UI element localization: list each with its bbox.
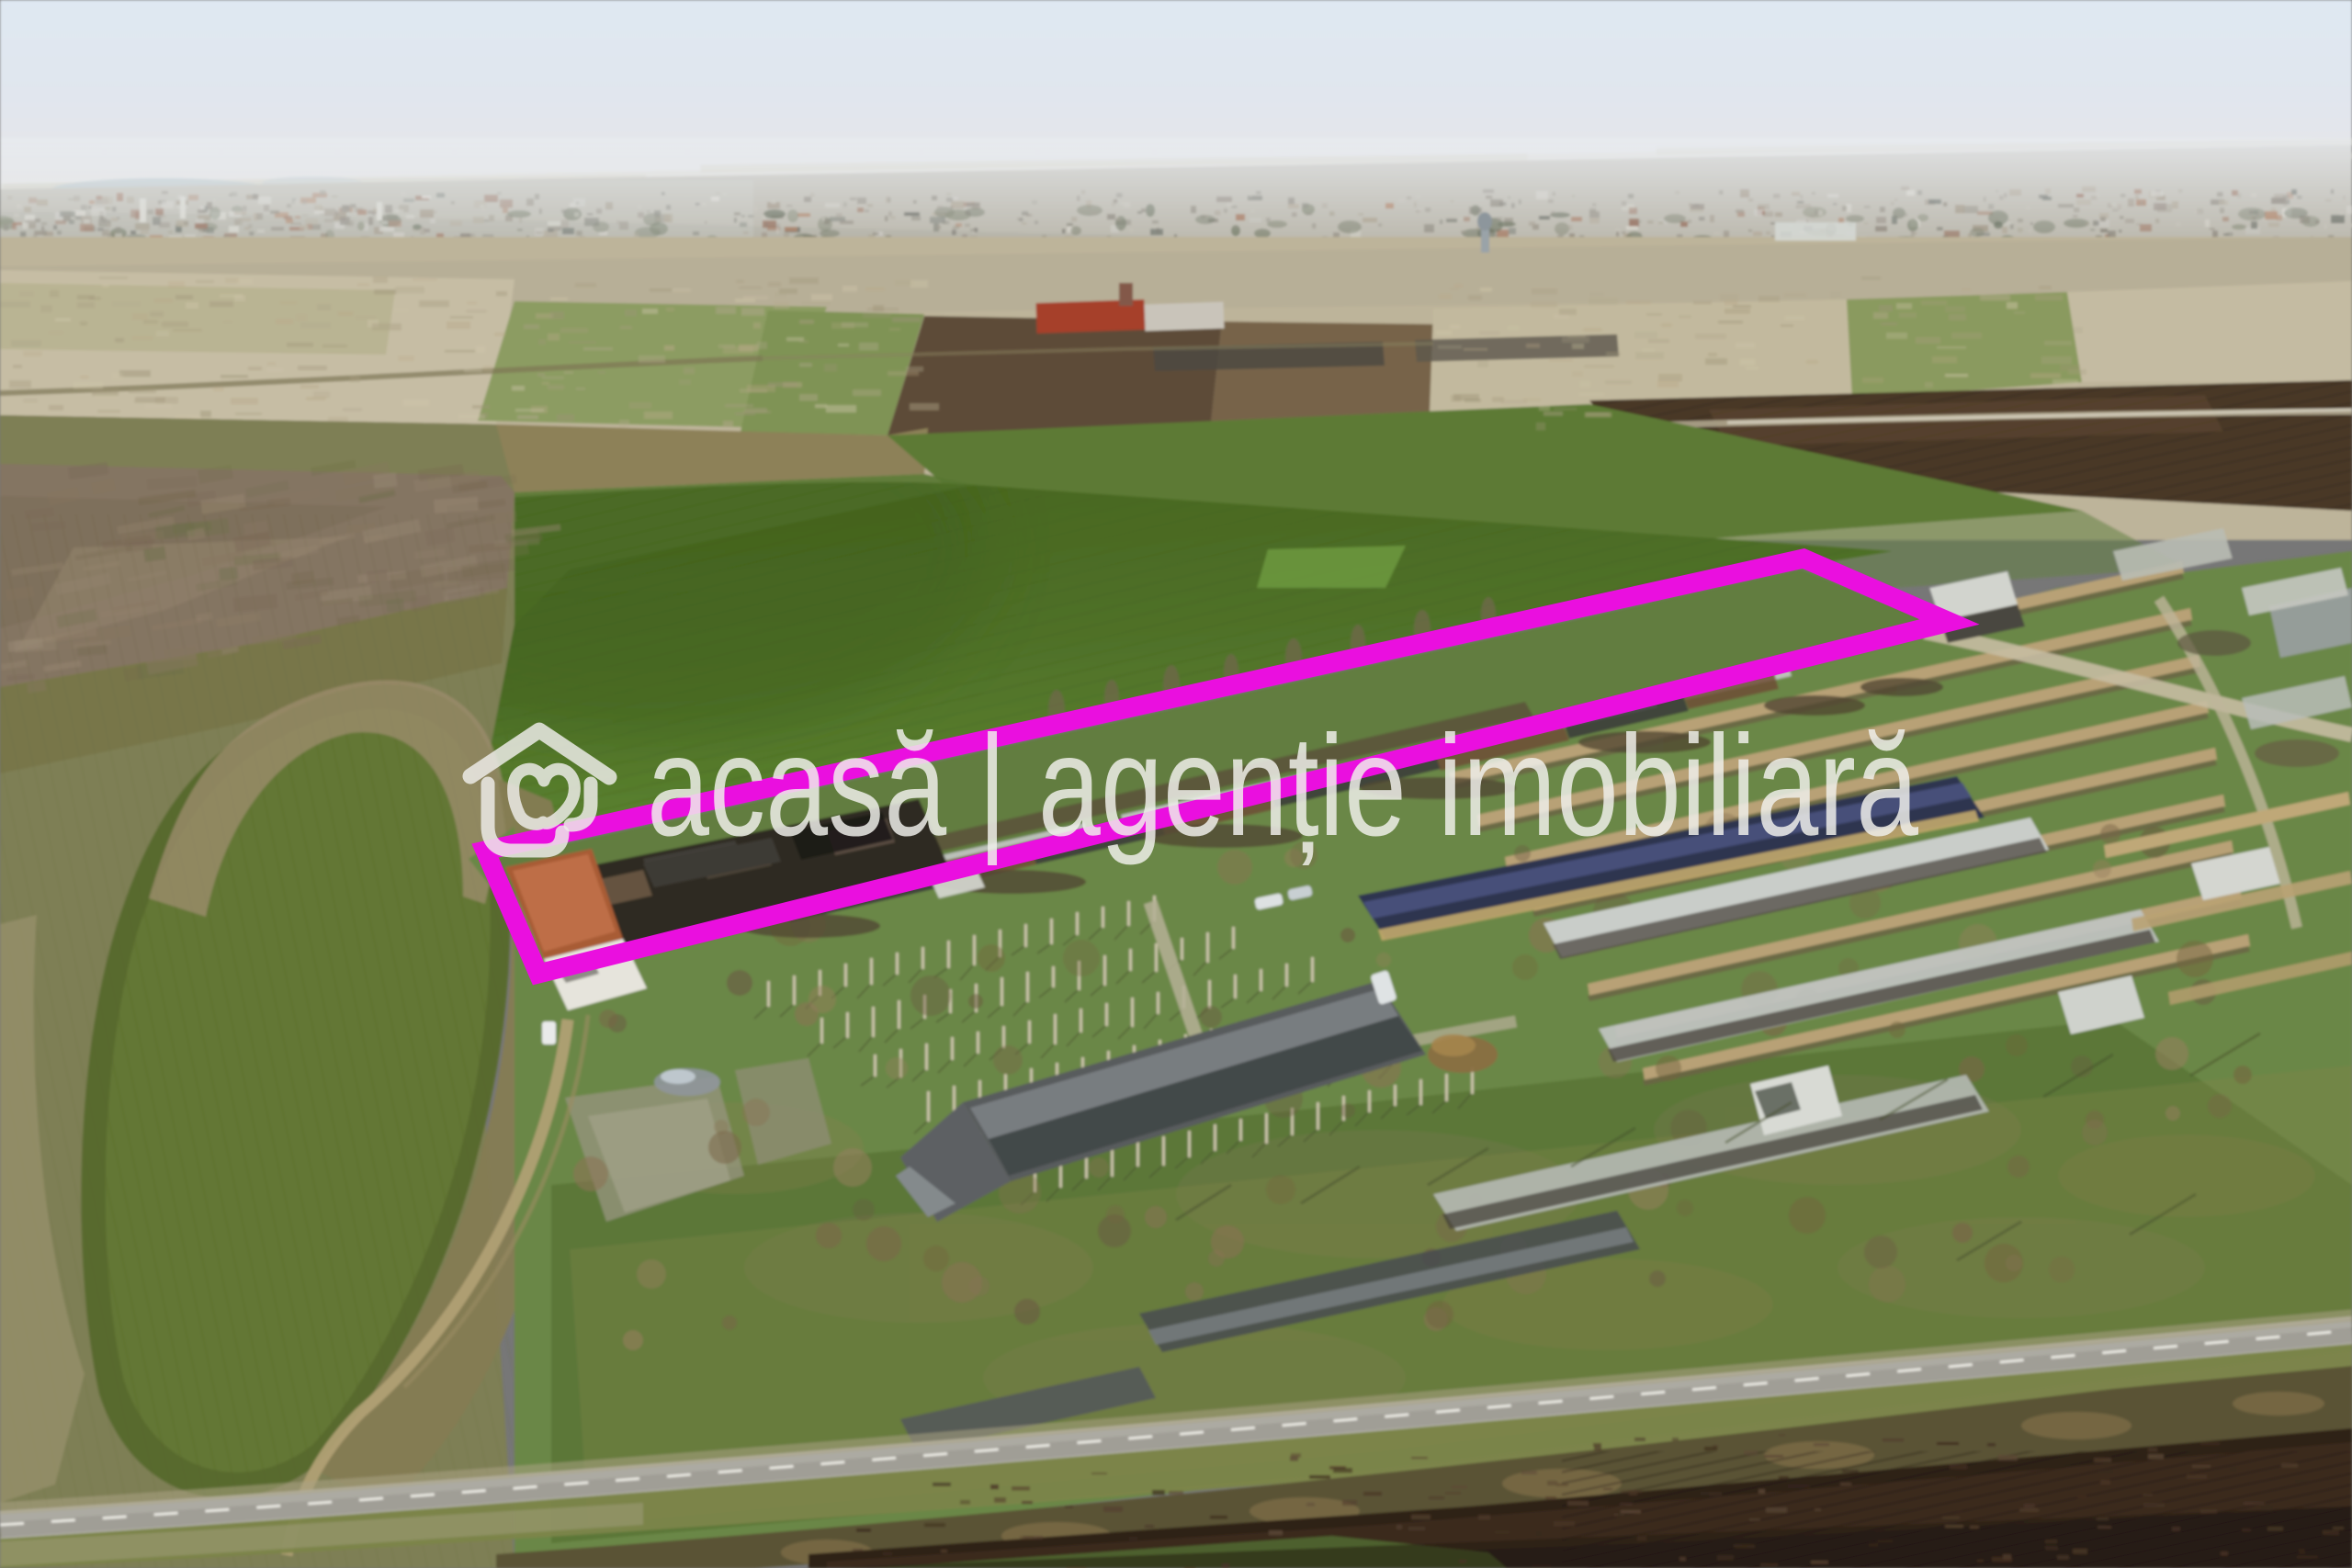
svg-text:acasă | agenție imobiliară: acasă | agenție imobiliară: [647, 706, 1918, 866]
